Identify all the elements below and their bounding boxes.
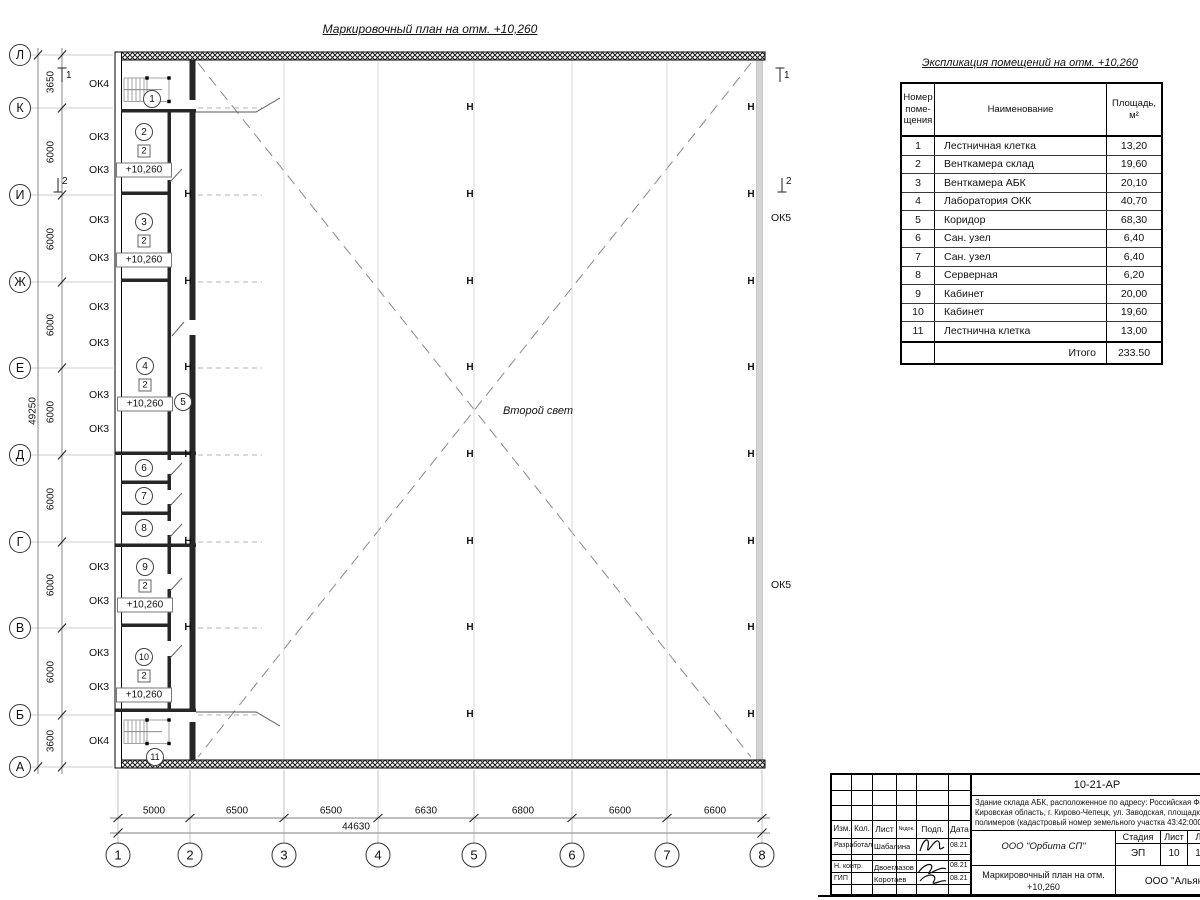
door-type-label: 2 <box>139 580 152 593</box>
schedule-header: Номер поме- щения Наименование Площадь, … <box>902 84 1161 137</box>
tb-col-ndok: №док. <box>897 826 916 832</box>
dimension-label: 6000 <box>46 228 57 250</box>
room-number-marker: 7 <box>135 487 153 505</box>
dimension-label: 6600 <box>704 806 726 817</box>
cell: 8 <box>902 267 935 285</box>
tb-date-3: 08.21 <box>950 875 968 882</box>
tb-role-2: Н. контр. <box>834 863 863 870</box>
table-row: 9Кабинет20,00 <box>902 285 1161 304</box>
tb-col-list: Лист <box>873 824 896 834</box>
table-row: 10Кабинет19,60 <box>902 304 1161 323</box>
col-axis-bubble: 4 <box>366 843 391 868</box>
column-symbol: Н <box>184 190 191 200</box>
tb-col-kol: Кол. <box>852 824 872 833</box>
window-tag: ОК3 <box>89 647 109 659</box>
col-axis-bubble: 2 <box>178 843 203 868</box>
dimension-label: 6600 <box>609 806 631 817</box>
section-mark-label: 2 <box>786 176 792 187</box>
table-row: 8Серверная6,20 <box>902 267 1161 286</box>
cell: 6,40 <box>1107 230 1161 248</box>
cell: 9 <box>902 285 935 303</box>
column-symbol: Н <box>747 363 754 373</box>
table-row: 11Лестнична клетка13,00 <box>902 322 1161 341</box>
schedule-title: Экспликация помещений на отм. +10,260 <box>922 57 1138 69</box>
dimension-label: 5000 <box>143 806 165 817</box>
window-tag: ОК3 <box>89 252 109 264</box>
stair-room-11 <box>124 718 171 745</box>
column-symbol: Н <box>466 190 473 200</box>
room-number-marker: 6 <box>135 459 153 477</box>
header-name: Наименование <box>935 84 1107 135</box>
col-axis-bubble: 6 <box>560 843 585 868</box>
cell: 4 <box>902 193 935 211</box>
column-symbol: Н <box>184 277 191 287</box>
signatures <box>916 835 950 887</box>
tb-sheet-value: 10 <box>1161 848 1187 859</box>
tb-date-1: 08.21 <box>950 842 968 849</box>
col-axis-bubble: 7 <box>655 843 680 868</box>
second-light-label: Второй свет <box>503 405 573 417</box>
tb-name-2: Двоеглазов <box>874 863 914 872</box>
column-symbol: Н <box>747 190 754 200</box>
table-row: 2Венткамера склад19,60 <box>902 156 1161 175</box>
row-axis-bubble: Е <box>9 357 31 379</box>
sheet-frame-line <box>818 895 1200 897</box>
tb-role-1: Разработал <box>834 842 872 849</box>
tb-name-1: Шабалина <box>874 842 910 851</box>
table-row: 5Коридор68,30 <box>902 211 1161 230</box>
table-row: 1Лестничная клетка13,20 <box>902 137 1161 156</box>
window-tag: ОК3 <box>89 337 109 349</box>
elevation-label: +10,260 <box>117 397 173 412</box>
row-axis-bubble: А <box>9 756 31 778</box>
cell: Лестничная клетка <box>935 137 1107 155</box>
room-number-marker: 1 <box>143 90 161 108</box>
window-tag: ОК3 <box>89 561 109 573</box>
window-tag: ОК5 <box>771 579 791 591</box>
table-row: 6Сан. узел6,40 <box>902 230 1161 249</box>
room-number-marker: 4 <box>136 357 154 375</box>
total-value: 233.50 <box>1107 343 1161 363</box>
room-number-marker: 2 <box>135 123 153 141</box>
tb-col-podp: Подп. <box>917 824 948 834</box>
door-type-label: 2 <box>138 145 151 158</box>
door-type-label: 2 <box>138 670 151 683</box>
schedule-total-row: Итого 233.50 <box>902 341 1161 363</box>
window-tag: ОК4 <box>89 735 109 747</box>
column-symbol: Н <box>747 537 754 547</box>
cell: Сан. узел <box>935 230 1107 248</box>
room-number-marker: 11 <box>146 748 164 766</box>
header-room-number: Номер поме- щения <box>902 84 935 135</box>
window-tag: ОК3 <box>89 164 109 176</box>
cell: 19,60 <box>1107 304 1161 322</box>
overall-dimension-label: 44630 <box>342 822 370 833</box>
bottom-wall <box>115 760 765 768</box>
tb-org: ООО "Орбита СП" <box>972 841 1115 852</box>
top-wall <box>115 52 765 60</box>
room-number-marker: 9 <box>136 558 154 576</box>
cell: 11 <box>902 322 935 341</box>
column-symbol: Н <box>466 623 473 633</box>
row-axis-bubble: Л <box>9 44 31 66</box>
door-leaves <box>170 169 184 658</box>
second-light-cross <box>198 63 751 757</box>
col-axis-bubble: 5 <box>462 843 487 868</box>
row-axis-bubble: Б <box>9 704 31 726</box>
outer-walls <box>115 52 765 768</box>
column-symbol: Н <box>747 450 754 460</box>
cell: Кабинет <box>935 304 1107 322</box>
dimension-label: 6000 <box>46 661 57 683</box>
row-axis-bubble: К <box>9 97 31 119</box>
window-tag: ОК3 <box>89 681 109 693</box>
window-tag: ОК3 <box>89 389 109 401</box>
tb-document-code: 10-21-АР <box>972 779 1200 791</box>
cell: Серверная <box>935 267 1107 285</box>
drawing-title: Маркировочный план на отм. +10,260 <box>323 22 538 36</box>
cell: 13,20 <box>1107 137 1161 155</box>
cell: 19,60 <box>1107 156 1161 174</box>
room-number-marker: 8 <box>135 519 153 537</box>
room-number-marker: 5 <box>174 393 192 411</box>
cell: 20,10 <box>1107 174 1161 192</box>
cell: Сан. узел <box>935 248 1107 266</box>
tb-col-data: Дата <box>949 824 970 834</box>
dimension-label: 6000 <box>46 574 57 596</box>
column-symbol: Н <box>184 363 191 373</box>
door-type-label: 2 <box>138 235 151 248</box>
cell: Коридор <box>935 211 1107 229</box>
tb-col-izm: Изм. <box>833 824 851 833</box>
tb-sheets-header: Листов <box>1188 832 1200 842</box>
column-symbol: Н <box>466 537 473 547</box>
dimension-label: 6800 <box>512 806 534 817</box>
column-symbol: Н <box>466 363 473 373</box>
tb-date-2: 08.21 <box>950 862 968 869</box>
section-mark-label: 1 <box>66 70 72 81</box>
col-axis-bubble: 1 <box>106 843 131 868</box>
column-symbol: Н <box>184 450 191 460</box>
elevation-label: +10,260 <box>117 598 173 613</box>
tb-name-3: Коротаев <box>874 875 906 884</box>
column-symbol: Н <box>747 710 754 720</box>
section-mark-label: 2 <box>62 176 68 187</box>
total-label: Итого <box>935 343 1107 363</box>
tb-sheets-value: 1 <box>1188 848 1200 859</box>
column-symbol: Н <box>184 623 191 633</box>
dimension-label: 6630 <box>415 806 437 817</box>
window-tag: ОК3 <box>89 131 109 143</box>
tb-sheet-header: Лист <box>1161 832 1187 842</box>
cell: 3 <box>902 174 935 192</box>
column-symbol: Н <box>747 277 754 287</box>
cell: 6,40 <box>1107 248 1161 266</box>
dimension-label: 6000 <box>46 141 57 163</box>
cell: 68,30 <box>1107 211 1161 229</box>
column-symbol: Н <box>466 277 473 287</box>
cell: 6 <box>902 230 935 248</box>
row-axis-bubble: И <box>9 184 31 206</box>
dimension-label: 3650 <box>46 71 57 93</box>
schedule-rows: 1Лестничная клетка13,202Венткамера склад… <box>902 137 1161 341</box>
drawing-sheet: Маркировочный план на отм. +10,260 Второ… <box>0 0 1200 900</box>
window-tag: ОК3 <box>89 595 109 607</box>
cell: 6,20 <box>1107 267 1161 285</box>
overall-dimension-label: 49250 <box>28 397 39 425</box>
dimension-label: 6500 <box>320 806 342 817</box>
elevation-label: +10,260 <box>116 688 172 703</box>
window-tag: ОК3 <box>89 423 109 435</box>
right-glazed-wall <box>757 58 763 762</box>
column-symbol: Н <box>747 103 754 113</box>
tb-stage-header: Стадия <box>1116 832 1160 842</box>
elevation-label: +10,260 <box>116 163 172 178</box>
door-type-label: 2 <box>139 379 152 392</box>
dimension-label: 6000 <box>46 488 57 510</box>
elevation-label: +10,260 <box>116 253 172 268</box>
tb-sheet-title: Маркировочный план на отм. +10,260 <box>972 869 1115 893</box>
tb-stage-value: ЭП <box>1116 848 1160 859</box>
cell: 20,00 <box>1107 285 1161 303</box>
row-axis-bubble: Ж <box>9 271 31 293</box>
cell: Лестнична клетка <box>935 322 1107 341</box>
row-axis-bubble: Д <box>9 444 31 466</box>
cell: Венткамера склад <box>935 156 1107 174</box>
title-block: Изм. Кол. Лист №док. Подп. Дата Разработ… <box>830 773 1200 896</box>
header-area: Площадь, м² <box>1107 84 1161 135</box>
column-symbol: Н <box>466 103 473 113</box>
row-axis-bubble: Г <box>9 531 31 553</box>
cell: Лаборатория ОКК <box>935 193 1107 211</box>
col-axis-bubble: 3 <box>272 843 297 868</box>
window-tag: ОК5 <box>771 212 791 224</box>
second-light-railing <box>196 98 280 726</box>
column-symbol: Н <box>466 450 473 460</box>
cell: 13,00 <box>1107 322 1161 341</box>
window-tag: ОК3 <box>89 214 109 226</box>
dimension-label: 3600 <box>46 730 57 752</box>
tb-company: ООО "Альянс <box>1116 876 1200 887</box>
room-number-marker: 3 <box>135 213 153 231</box>
dimension-label: 6000 <box>46 401 57 423</box>
table-row: 7Сан. узел6,40 <box>902 248 1161 267</box>
table-row: 4Лаборатория ОКК40,70 <box>902 193 1161 212</box>
window-tag: ОК4 <box>89 78 109 90</box>
cell: Венткамера АБК <box>935 174 1107 192</box>
cell: 1 <box>902 137 935 155</box>
cell: 7 <box>902 248 935 266</box>
cell: 10 <box>902 304 935 322</box>
window-tag: ОК3 <box>89 301 109 313</box>
cell: 40,70 <box>1107 193 1161 211</box>
column-symbol: Н <box>184 537 191 547</box>
dimension-label: 6500 <box>226 806 248 817</box>
tb-object-description: Здание склада АБК, расположенное по адре… <box>975 798 1200 828</box>
room-schedule: Номер поме- щения Наименование Площадь, … <box>900 82 1163 365</box>
column-symbol: Н <box>466 710 473 720</box>
col-axis-bubble: 8 <box>750 843 775 868</box>
cell: 2 <box>902 156 935 174</box>
room-number-marker: 10 <box>135 648 153 666</box>
cell: Кабинет <box>935 285 1107 303</box>
section-mark-label: 1 <box>784 70 790 81</box>
tb-role-3: ГИП <box>834 875 848 882</box>
column-symbol: Н <box>747 623 754 633</box>
dimension-label: 6000 <box>46 314 57 336</box>
row-axis-bubble: В <box>9 617 31 639</box>
table-row: 3Венткамера АБК20,10 <box>902 174 1161 193</box>
cell: 5 <box>902 211 935 229</box>
